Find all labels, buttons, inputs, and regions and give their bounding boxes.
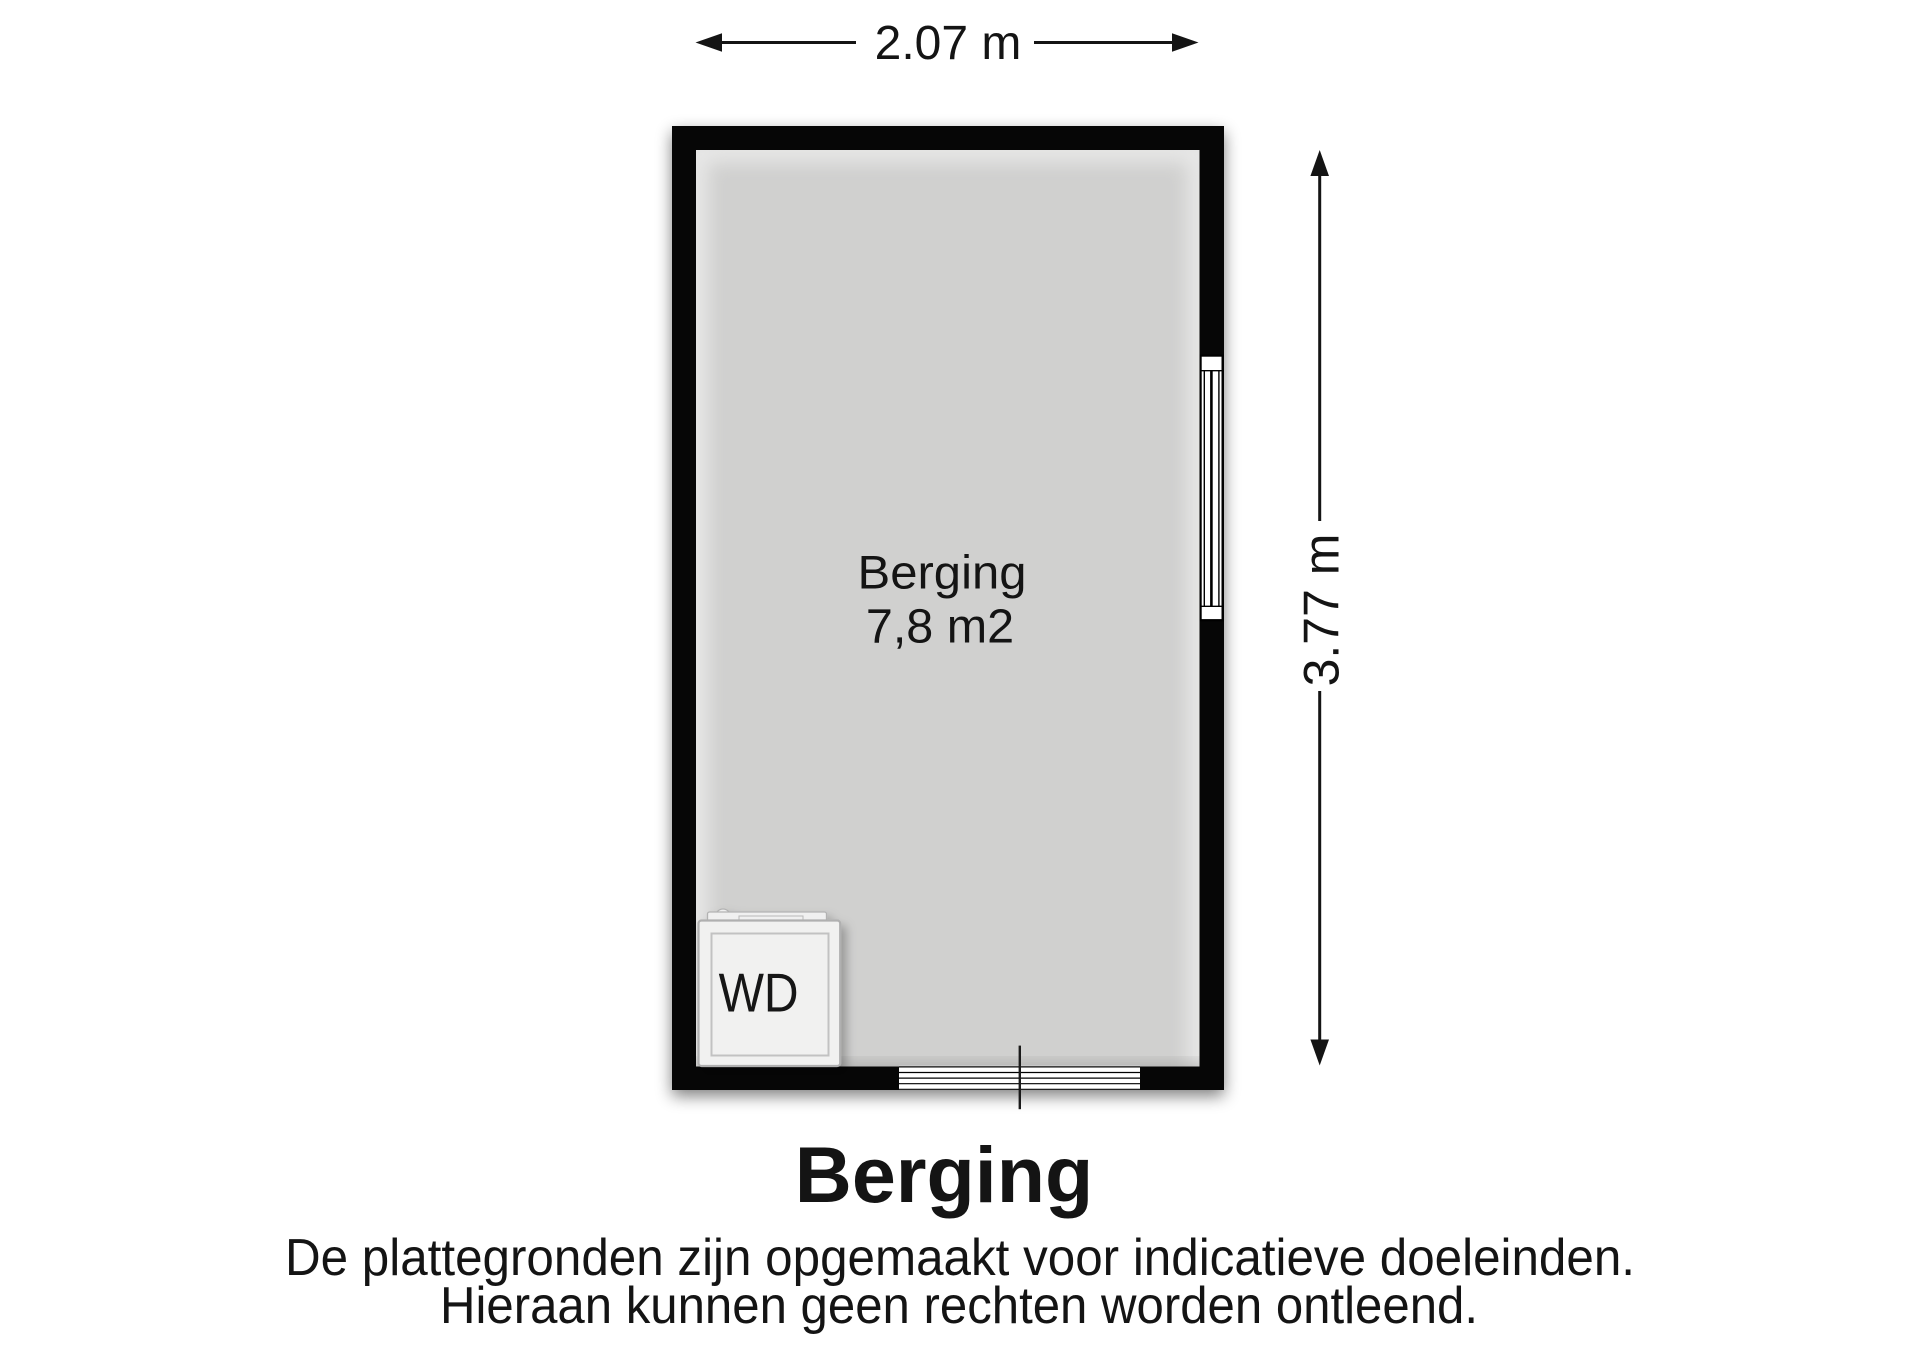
svg-text:WD: WD [719, 962, 799, 1024]
svg-text:Berging: Berging [795, 1130, 1093, 1219]
svg-text:Hieraan kunnen geen rechten wo: Hieraan kunnen geen rechten worden ontle… [440, 1277, 1478, 1335]
svg-text:2.07 m: 2.07 m [875, 17, 1022, 70]
svg-text:7,8 m2: 7,8 m2 [866, 600, 1014, 654]
svg-text:Berging: Berging [858, 546, 1027, 599]
svg-text:3.77 m: 3.77 m [1294, 534, 1350, 687]
